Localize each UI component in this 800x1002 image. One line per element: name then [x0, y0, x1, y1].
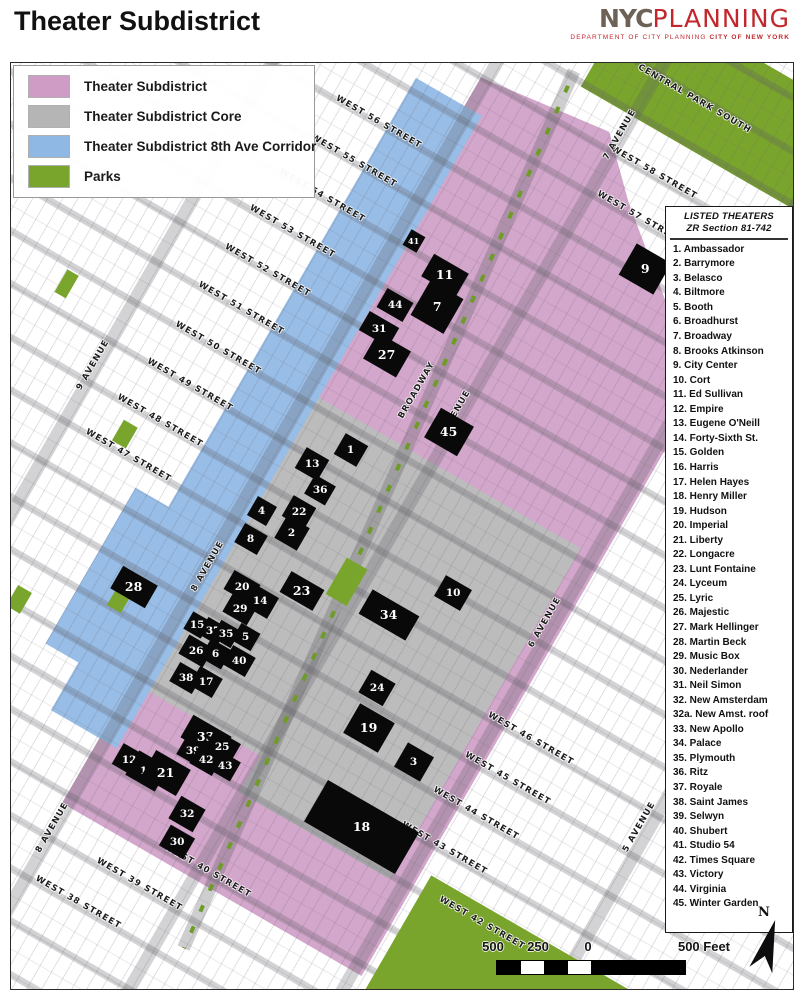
theater-list-item: 30. Nederlander — [673, 665, 792, 680]
scale-label: 500 — [482, 939, 504, 954]
theater-list-item: 35. Plymouth — [673, 752, 792, 767]
subdistrict-swatch — [28, 75, 70, 98]
theater-list-item: 15. Golden — [673, 446, 792, 461]
theater-list-item: 33. New Apollo — [673, 723, 792, 738]
theater-list-item: 45. Winter Garden — [673, 897, 792, 912]
theater-marker-number: 13 — [305, 459, 320, 470]
theater-list-item: 36. Ritz — [673, 766, 792, 781]
panel-rule — [670, 238, 788, 240]
theater-marker-number: 23 — [293, 585, 310, 598]
theater-marker-number: 41 — [408, 237, 419, 245]
theater-marker-number: 2 — [288, 528, 295, 539]
legend-label: Theater Subdistrict Core — [84, 109, 242, 124]
page-title: Theater Subdistrict — [14, 6, 260, 37]
theater-list-item: 13. Eugene O'Neill — [673, 417, 792, 432]
theater-list-item: 26. Majestic — [673, 606, 792, 621]
theater-marker-number: 17 — [199, 677, 214, 688]
theater-marker-number: 27 — [378, 349, 395, 362]
theater-list-item: 7. Broadway — [673, 330, 792, 345]
theater-marker-number: 8 — [247, 534, 254, 545]
theater-list-item: 42. Times Square — [673, 854, 792, 869]
theater-list-item: 1. Ambassador — [673, 243, 792, 258]
core-swatch — [28, 105, 70, 128]
theater-marker-number: 34 — [380, 609, 397, 622]
logo-tagline-right: CITY OF NEW YORK — [709, 34, 790, 41]
legend-item-corridor: Theater Subdistrict 8th Ave Corridor — [28, 135, 316, 157]
legend-label: Parks — [84, 169, 121, 184]
theater-list-item: 41. Studio 54 — [673, 839, 792, 854]
theater-marker-number: 21 — [157, 767, 174, 780]
theater-marker-number: 22 — [292, 507, 307, 518]
theater-marker-number: 3 — [410, 757, 417, 768]
legend-item-parks: Parks — [28, 165, 121, 187]
page: Theater Subdistrict NYCPLANNING DEPARTME… — [0, 0, 800, 1002]
theater-marker-number: 30 — [170, 837, 185, 848]
theater-list-item: 27. Mark Hellinger — [673, 621, 792, 636]
theater-marker-number: 36 — [313, 485, 328, 496]
nyc-planning-logo: NYCPLANNING DEPARTMENT OF CITY PLANNING … — [570, 6, 790, 42]
logo-nyc: NYC — [599, 4, 652, 33]
theater-list-item: 20. Imperial — [673, 519, 792, 534]
logo-planning: PLANNING — [652, 4, 790, 33]
scale-segment — [591, 961, 685, 974]
theater-list-item: 29. Music Box — [673, 650, 792, 665]
scale-bar — [496, 960, 686, 975]
theater-marker-number: 5 — [242, 632, 249, 643]
theater-list-item: 22. Longacre — [673, 548, 792, 563]
scale-segment — [497, 961, 521, 974]
scale-label: 500 Feet — [678, 939, 730, 954]
theater-list-item: 5. Booth — [673, 301, 792, 316]
theater-list-item: 12. Empire — [673, 403, 792, 418]
theater-list: 1. Ambassador2. Barrymore3. Belasco4. Bi… — [666, 243, 792, 912]
theater-marker-number: 45 — [440, 426, 457, 439]
theater-marker-number: 44 — [388, 300, 403, 311]
corridor-swatch — [28, 135, 70, 158]
theater-list-item: 2. Barrymore — [673, 257, 792, 272]
theater-list-item: 3. Belasco — [673, 272, 792, 287]
theater-list-item: 28. Martin Beck — [673, 636, 792, 651]
theater-marker-number: 11 — [436, 269, 453, 282]
panel-title: LISTED THEATERS — [666, 211, 792, 223]
theater-list-item: 17. Helen Hayes — [673, 476, 792, 491]
legend-item-core: Theater Subdistrict Core — [28, 105, 242, 127]
theater-marker-number: 29 — [233, 604, 248, 615]
theater-list-item: 16. Harris — [673, 461, 792, 476]
map-frame: CENTRAL PARK SOUTHWEST 58 STREETWEST 57 … — [10, 62, 794, 990]
theater-list-item: 18. Henry Miller — [673, 490, 792, 505]
north-label: N — [758, 905, 770, 920]
theater-list-item: 21. Liberty — [673, 534, 792, 549]
theater-list-item: 24. Lyceum — [673, 577, 792, 592]
theater-list-item: 25. Lyric — [673, 592, 792, 607]
theater-list-item: 23. Lunt Fontaine — [673, 563, 792, 578]
theater-list-item: 32. New Amsterdam — [673, 694, 792, 709]
theater-marker-number: 10 — [446, 588, 461, 599]
scale-segment — [521, 961, 545, 974]
theater-marker-number: 9 — [641, 263, 650, 276]
theater-marker-number: 35 — [219, 629, 234, 640]
theater-marker-number: 24 — [370, 683, 385, 694]
scale-segment — [568, 961, 592, 974]
theater-marker-number: 7 — [433, 301, 442, 314]
scale-segment — [544, 961, 568, 974]
listed-theaters-panel: LISTED THEATERS ZR Section 81-742 1. Amb… — [665, 206, 793, 933]
theater-list-item: 44. Virginia — [673, 883, 792, 898]
theater-list-item: 11. Ed Sullivan — [673, 388, 792, 403]
theater-list-item: 43. Victory — [673, 868, 792, 883]
theater-marker-number: 1 — [347, 445, 354, 456]
theater-marker-number: 28 — [125, 581, 142, 594]
theater-list-item: 6. Broadhurst — [673, 315, 792, 330]
panel-subtitle: ZR Section 81-742 — [666, 223, 792, 235]
theater-marker-number: 40 — [232, 656, 247, 667]
scale-label: 250 — [527, 939, 549, 954]
theater-list-item: 31. Neil Simon — [673, 679, 792, 694]
logo-tagline-left: DEPARTMENT OF CITY PLANNING — [570, 34, 706, 41]
theater-list-item: 37. Royale — [673, 781, 792, 796]
theater-list-item: 38. Saint James — [673, 796, 792, 811]
theater-marker-number: 4 — [258, 506, 265, 517]
legend-item-subdistrict: Theater Subdistrict — [28, 75, 207, 97]
legend-label: Theater Subdistrict 8th Ave Corridor — [84, 139, 316, 154]
logo-wordmark: NYCPLANNING — [570, 6, 790, 32]
scale-label: 0 — [584, 939, 591, 954]
theater-marker-number: 43 — [218, 761, 233, 772]
theater-list-item: 19. Hudson — [673, 505, 792, 520]
theater-list-item: 10. Cort — [673, 374, 792, 389]
theater-marker-number: 18 — [352, 821, 369, 834]
theater-list-item: 9. City Center — [673, 359, 792, 374]
legend: Theater Subdistrict Theater Subdistrict … — [13, 65, 315, 198]
legend-label: Theater Subdistrict — [84, 79, 207, 94]
theater-list-item: 34. Palace — [673, 737, 792, 752]
theater-list-item: 32a. New Amst. roof — [673, 708, 792, 723]
logo-tagline: DEPARTMENT OF CITY PLANNING CITY OF NEW … — [570, 35, 790, 42]
theater-marker-number: 32 — [180, 809, 195, 820]
parks-swatch — [28, 165, 70, 188]
theater-list-item: 39. Selwyn — [673, 810, 792, 825]
theater-list-item: 40. Shubert — [673, 825, 792, 840]
theater-marker-number: 19 — [360, 722, 377, 735]
theater-list-item: 14. Forty-Sixth St. — [673, 432, 792, 447]
theater-list-item: 8. Brooks Atkinson — [673, 345, 792, 360]
theater-list-item: 4. Biltmore — [673, 286, 792, 301]
theater-marker-number: 6 — [212, 649, 219, 660]
